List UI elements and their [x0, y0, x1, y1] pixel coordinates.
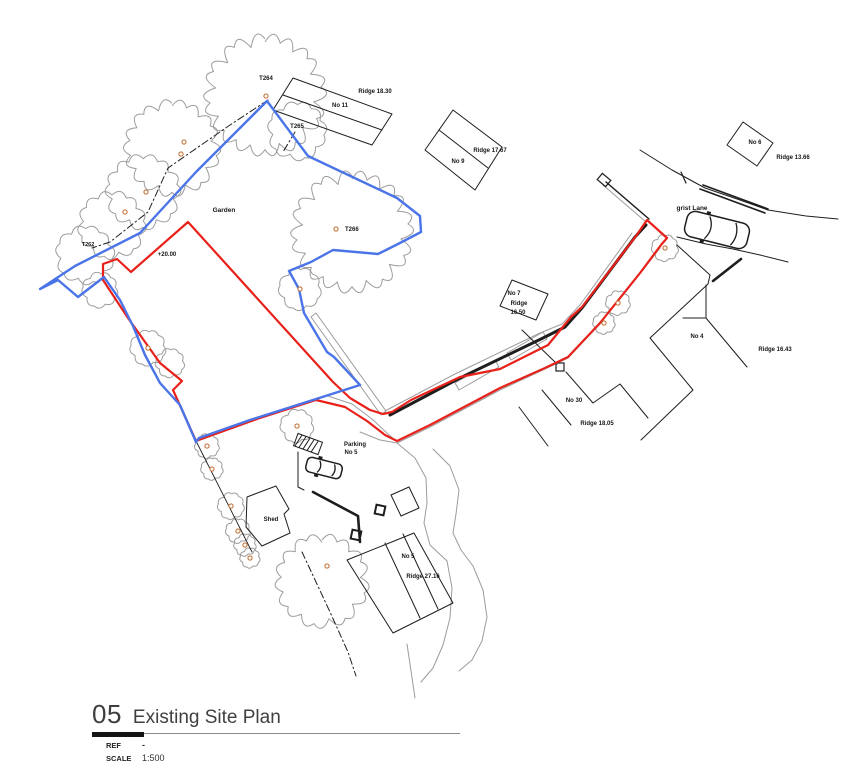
survey-line-1 — [92, 100, 268, 248]
site-plan-canvas: T264T265T266T262Garden+20.00No 11Ridge 1… — [0, 0, 842, 775]
boundary-sw-line — [196, 441, 252, 552]
plan-label: Ridge — [511, 301, 528, 307]
plan-label: Shed — [264, 517, 279, 523]
plan-label: No 30 — [566, 398, 583, 404]
tree-center-dot — [205, 444, 209, 448]
scale-value: 1:500 — [142, 753, 460, 763]
scale-row: SCALE 1:500 — [92, 753, 460, 763]
plan-label: No 11 — [332, 103, 349, 109]
tree-center-dot — [236, 529, 240, 533]
tree-center-dot — [602, 321, 606, 325]
car-body — [683, 210, 751, 251]
plan-label: No 4 — [690, 334, 704, 340]
tree-center-dot — [663, 246, 667, 250]
title-rule-dark — [92, 732, 144, 737]
building-no5 — [347, 533, 453, 633]
plan-label: Parking — [344, 442, 366, 448]
tree-center-dot — [298, 287, 302, 291]
parking-steps — [294, 433, 323, 454]
scale-label: SCALE — [106, 754, 142, 763]
drawing-number: 05 — [92, 699, 122, 730]
drawing-title-block: 05 Existing Site Plan REF - SCALE 1:500 — [92, 699, 460, 763]
drawing-sheet: T264T265T266T262Garden+20.00No 11Ridge 1… — [0, 0, 842, 775]
survey-line-3 — [302, 552, 356, 676]
plan-label: T266 — [345, 227, 359, 233]
plan-label: T265 — [290, 124, 304, 130]
plan-label: T262 — [82, 242, 95, 248]
outbuilding — [391, 487, 419, 516]
plot-no4 — [641, 245, 710, 440]
ref-row: REF - — [92, 740, 460, 750]
parking-kerb — [298, 452, 304, 490]
tree-center-dot — [144, 190, 148, 194]
plan-label: No 5 — [344, 450, 358, 456]
plot-no30-c — [542, 390, 571, 425]
title-rule — [92, 732, 460, 737]
hatch-line — [294, 433, 323, 454]
entrance-wall-black — [606, 182, 649, 219]
drive-retaining-wall — [390, 225, 646, 415]
tree-center-dot — [334, 227, 338, 231]
tree-center-dot — [616, 301, 620, 305]
plan-label: grist Lane — [676, 205, 707, 212]
tree-center-dot — [295, 424, 299, 428]
tree-center-dot — [229, 504, 233, 508]
tree-canopy — [78, 191, 147, 259]
plot-no4-inner-2 — [683, 318, 747, 367]
plan-label: No 7 — [507, 291, 521, 297]
tree-center-dot — [210, 467, 214, 471]
tree-center-dot — [179, 152, 183, 156]
gate-post-2 — [351, 530, 362, 541]
plan-label: Ridge 18.30 — [358, 89, 392, 95]
drive-bay-1 — [455, 360, 499, 390]
tree-canopy — [56, 226, 115, 285]
plan-label: Ridge 18.05 — [580, 421, 614, 427]
car-body — [305, 456, 344, 479]
plot-no30-b — [566, 372, 648, 418]
title-rule-thin — [144, 733, 460, 734]
tree-center-dot — [123, 210, 127, 214]
tree-canopy — [275, 534, 369, 628]
tree-center-dot — [264, 94, 268, 98]
tree-center-dot — [182, 140, 186, 144]
ref-label: REF — [106, 741, 142, 750]
plan-label: +20.00 — [158, 252, 177, 258]
plan-label: Ridge 13.66 — [776, 155, 810, 161]
lane-wall-2 — [703, 185, 768, 209]
tree-center-dot — [146, 346, 150, 350]
lane-wall-1 — [700, 189, 765, 213]
plan-label: Ridge 16.43 — [758, 347, 792, 353]
retaining-wall-zigzag — [313, 492, 360, 542]
gate-post-1 — [375, 505, 386, 516]
plan-label: T264 — [259, 76, 273, 82]
no4-garden-wall — [713, 259, 741, 281]
plan-label: Ridge 17.67 — [473, 148, 507, 154]
plan-label: Ridge 27.16 — [406, 574, 440, 580]
tree-center-dot — [325, 564, 329, 568]
lane-continuation — [407, 644, 415, 698]
plan-label: Garden — [213, 207, 236, 214]
plan-label: No 6 — [748, 140, 762, 146]
plot-no30-d — [519, 407, 548, 446]
tree-center-dot — [243, 543, 247, 547]
entrance-wall-gray — [603, 185, 646, 222]
plan-label: 16.50 — [510, 310, 526, 316]
drawing-title: Existing Site Plan — [133, 707, 281, 729]
building-shed — [246, 486, 290, 546]
tree-canopy — [123, 100, 220, 197]
drive-edge-se — [360, 248, 660, 443]
plan-label: No 5 — [401, 554, 415, 560]
garden-wall-long — [311, 313, 386, 415]
plan-label: No 9 — [451, 159, 465, 165]
tree-center-dot — [248, 556, 252, 560]
car-parking — [304, 453, 344, 482]
footpath-east-2 — [433, 449, 487, 671]
site-boundary-red — [103, 220, 667, 441]
ref-value: - — [142, 740, 460, 750]
footpath-east-1 — [397, 443, 447, 561]
